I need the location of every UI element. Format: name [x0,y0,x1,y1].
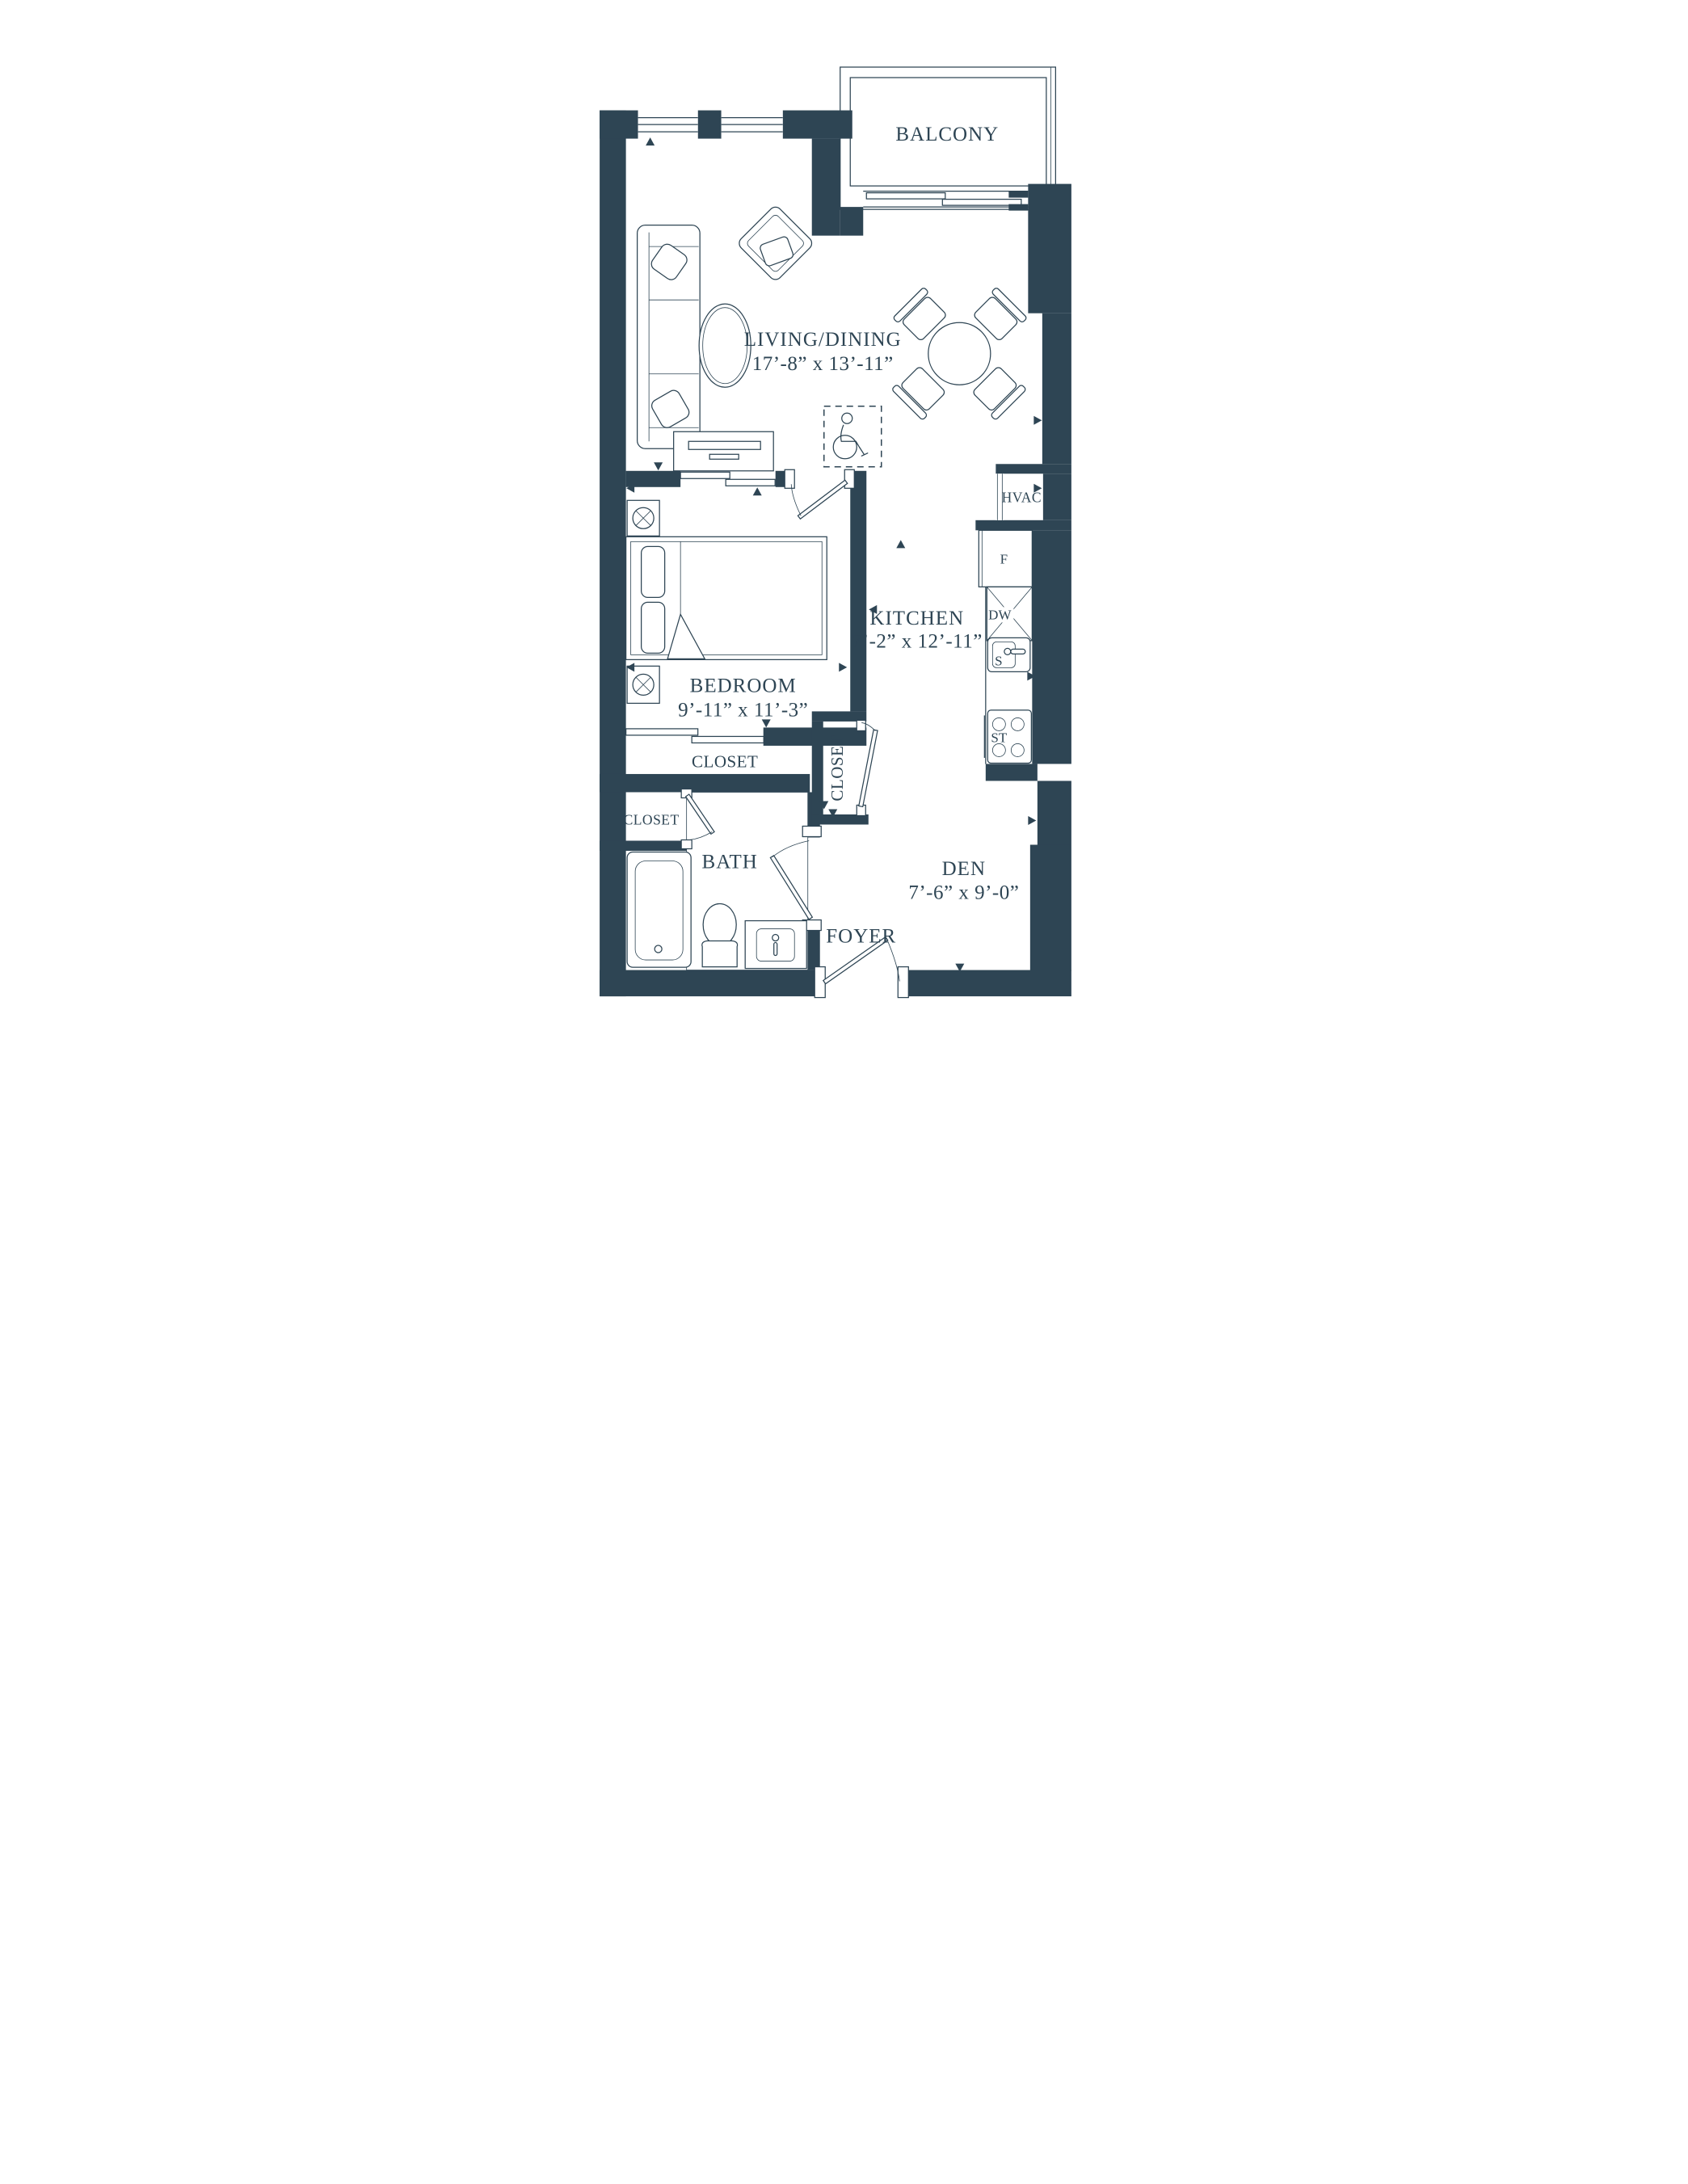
foyer-label: FOYER [826,926,896,948]
floor-plan-page: BALCONY [422,0,1266,1092]
bedroom-closet-label: CLOSET [692,751,758,771]
sink-label: S [995,653,1002,668]
kitchen-dims: 7’-2” x 12’-11” [852,630,983,652]
coffee-table [699,304,751,387]
nightstand [627,666,659,703]
living-label: LIVING/DINING [744,329,902,351]
bathtub [627,852,691,967]
kitchen-label: KITCHEN [869,608,964,629]
balcony-label: BALCONY [895,124,999,145]
vanity-sink [745,921,806,969]
window-living-2 [722,111,783,139]
fridge: F [979,530,1032,587]
dishwasher: DW [987,587,1032,641]
bed-pillow [642,602,665,653]
stove: ST [984,710,1031,764]
bed-pillow [642,546,665,597]
stove-label: ST [991,730,1007,745]
fridge-label: F [1000,551,1008,566]
linen-closet-label: CLOSET [624,811,680,827]
hvac-label: HVAC [1002,489,1042,505]
bed [626,537,827,659]
den-dims: 7’-6” x 9’-0” [908,882,1019,904]
foyer-closet-label: CLOSET [827,734,847,801]
bath-label: BATH [702,852,758,873]
living-dims: 17’-8” x 13’-11” [752,353,894,375]
tv-console [674,431,774,471]
kitchen-sink: S [987,638,1030,671]
nightstand [627,500,659,536]
den-label: DEN [942,858,986,880]
toilet [702,904,738,967]
sofa [638,225,701,449]
window-living-1 [638,111,698,139]
bedroom-label: BEDROOM [690,675,797,696]
bedroom-dims: 9’-11” x 11’-3” [678,699,808,721]
floor-plan: BALCONY [422,0,1266,1092]
dishwasher-label: DW [988,607,1012,622]
dining-table [928,322,991,385]
